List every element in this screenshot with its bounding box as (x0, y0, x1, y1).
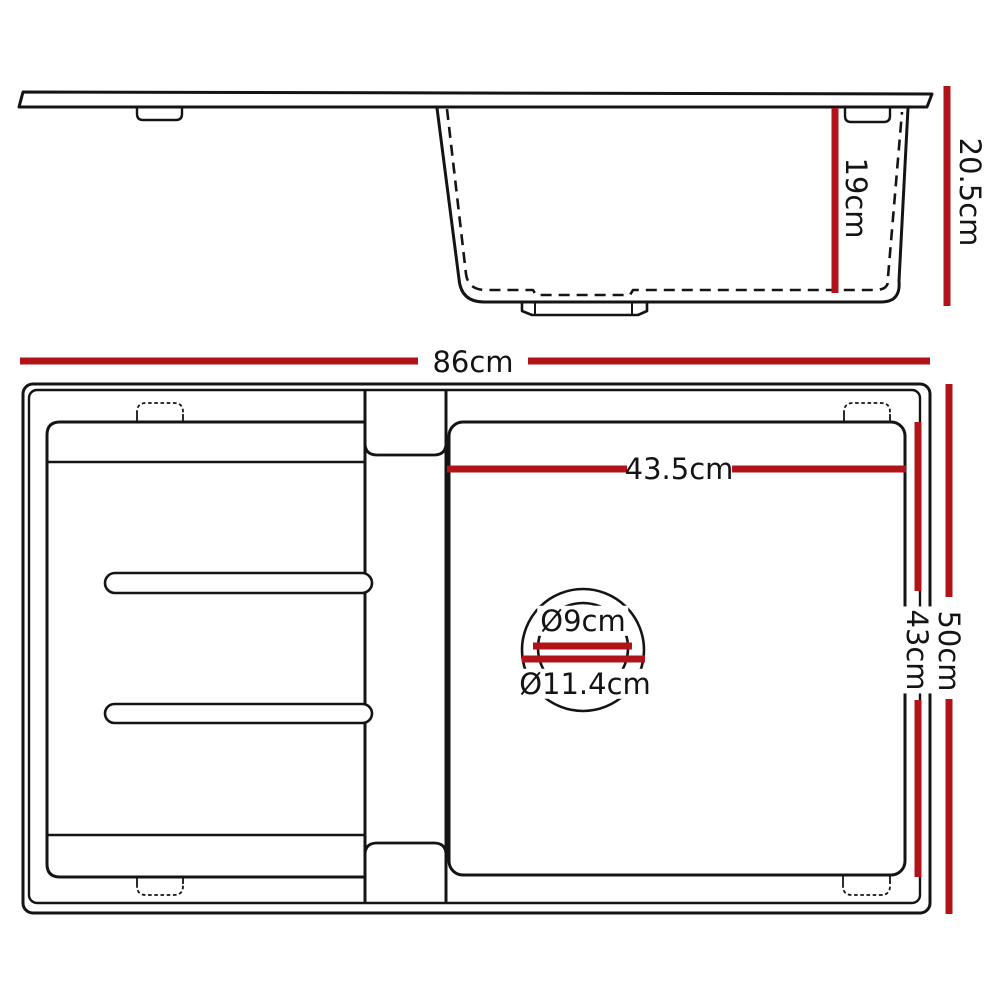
bowl-length-label: 43cm (902, 606, 932, 693)
overall-width-label: 86cm (432, 347, 513, 377)
countertop-profile (19, 92, 932, 107)
drain-outer-diameter-label: Ø11.4cm (516, 669, 654, 699)
tab-arc (137, 884, 183, 895)
sink-line-art (0, 0, 1000, 1000)
overall-length-label: 50cm (934, 607, 964, 694)
side-view (19, 86, 947, 315)
tab-arc (137, 403, 183, 414)
mounting-clip-side-right (845, 107, 890, 122)
drain-boss-detail (535, 302, 632, 315)
drainboard-outline (47, 422, 365, 877)
mounting-tab-bottom-left (137, 876, 183, 895)
tab-sides (843, 876, 890, 884)
tab-arc (844, 403, 890, 414)
divider-bottom-cap (365, 843, 446, 903)
divider-top-cap (365, 390, 446, 455)
mounting-tab-top-right (844, 403, 890, 422)
mounting-tab-top-left (137, 403, 183, 422)
tab-arc (843, 884, 890, 895)
mounting-clip-side-left (137, 107, 182, 120)
mounting-tab-bottom-right (843, 876, 890, 895)
bowl-outline-plan (449, 422, 905, 875)
overall-depth-label: 20.5cm (955, 138, 985, 247)
drainboard-groove-1 (105, 573, 372, 593)
bowl-width-label: 43.5cm (625, 454, 734, 484)
sink-outer-rim (23, 384, 930, 913)
plan-view (20, 361, 949, 914)
drain-inner-diameter-label: Ø9cm (537, 606, 628, 636)
drainboard-groove-2 (105, 704, 372, 723)
bowl-depth-label: 19cm (841, 157, 871, 238)
drain-boss-profile (522, 302, 647, 315)
sink-dimension-diagram: 19cm 20.5cm 86cm 43.5cm 43cm 50cm Ø9cm Ø… (0, 0, 1000, 1000)
